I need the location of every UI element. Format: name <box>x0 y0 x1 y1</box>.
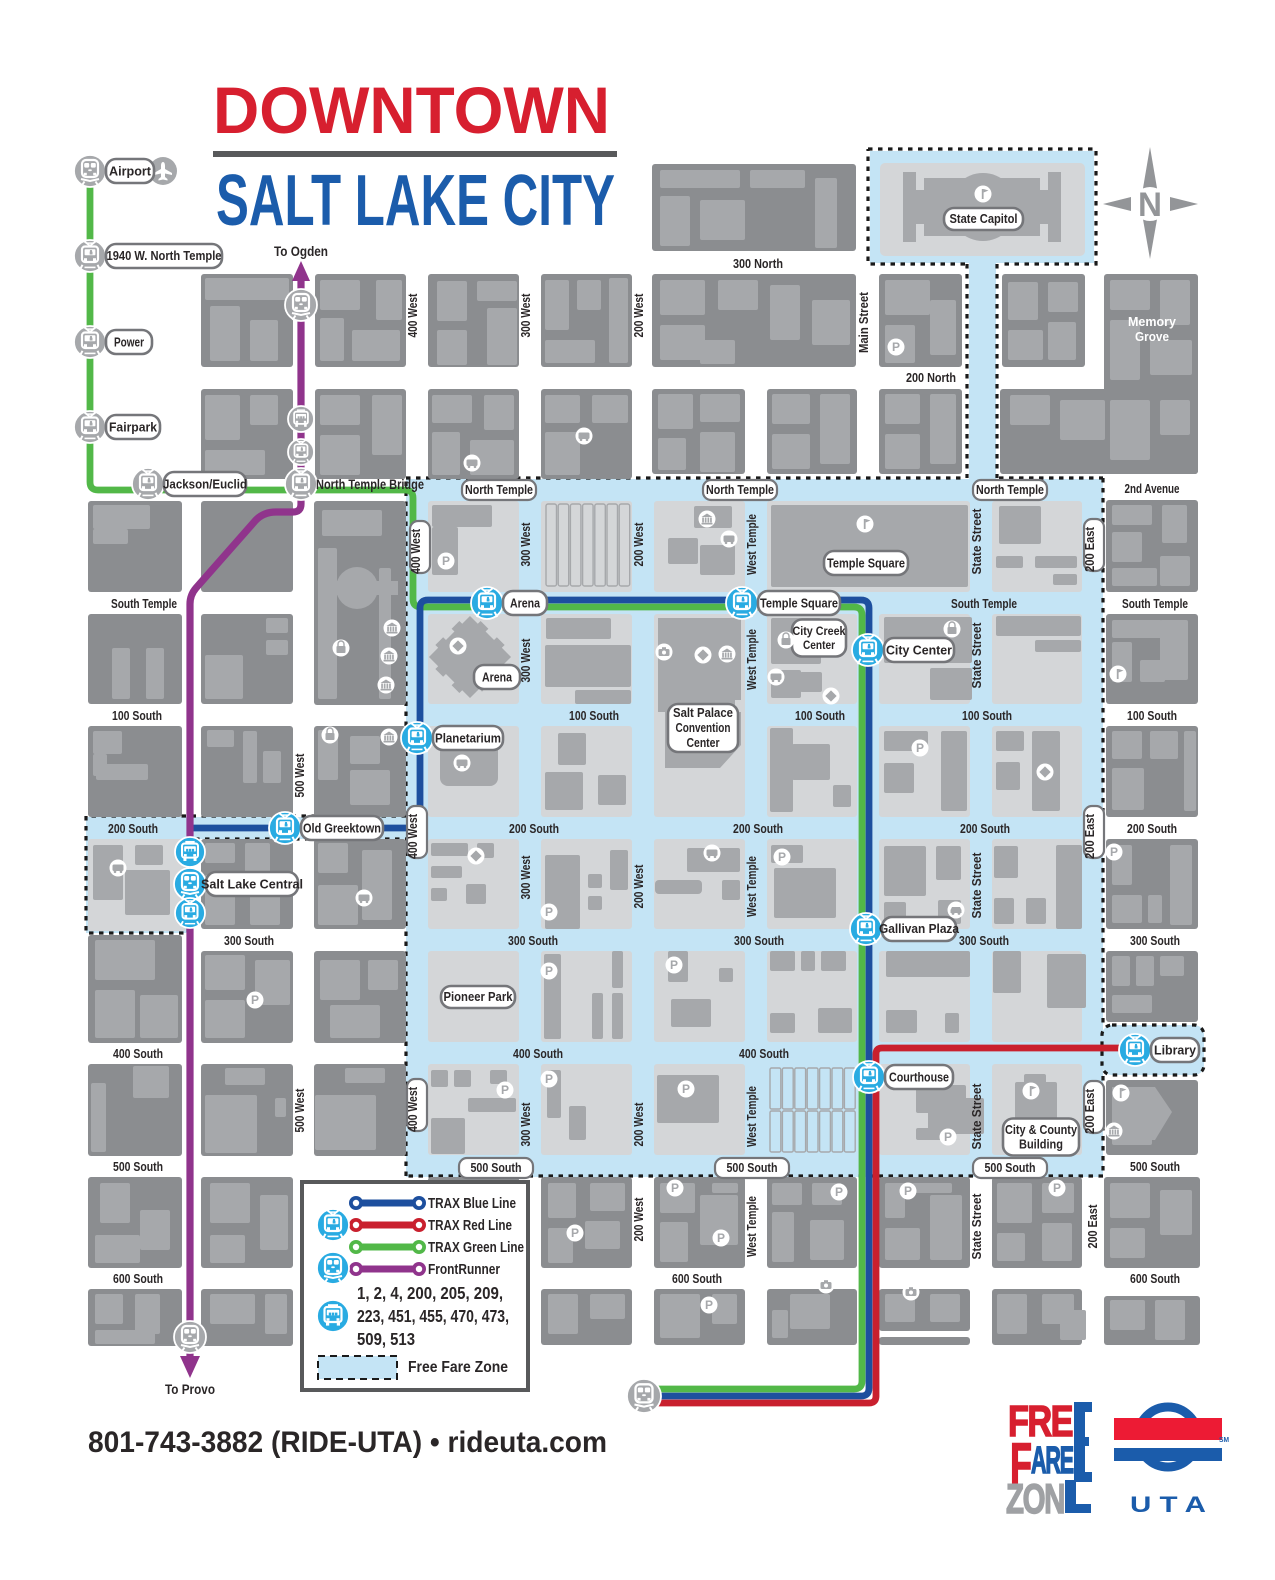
svg-text:City & County: City & County <box>1005 1123 1077 1137</box>
svg-text:North Temple: North Temple <box>706 483 774 497</box>
svg-text:200 East: 200 East <box>1083 1088 1097 1134</box>
svg-text:300 South: 300 South <box>959 933 1009 948</box>
svg-text:West Temple: West Temple <box>744 1196 759 1257</box>
svg-text:300 West: 300 West <box>518 855 533 900</box>
svg-text:200 West: 200 West <box>631 864 646 909</box>
svg-text:400 West: 400 West <box>405 293 420 338</box>
svg-text:Airport: Airport <box>109 163 152 178</box>
svg-text:509, 513: 509, 513 <box>357 1329 415 1349</box>
svg-text:SALT LAKE CITY: SALT LAKE CITY <box>216 161 615 241</box>
svg-text:West Temple: West Temple <box>744 514 759 575</box>
svg-text:DOWNTOWN: DOWNTOWN <box>213 73 610 147</box>
svg-text:Main Street: Main Street <box>856 291 871 353</box>
svg-text:400 South: 400 South <box>513 1046 563 1061</box>
svg-text:Center: Center <box>803 638 835 652</box>
svg-text:North Temple: North Temple <box>976 483 1044 497</box>
svg-text:200 West: 200 West <box>631 1197 646 1242</box>
svg-text:500 South: 500 South <box>1130 1159 1180 1174</box>
svg-text:200 West: 200 West <box>631 293 646 338</box>
svg-text:State Capitol: State Capitol <box>950 212 1018 226</box>
svg-text:SM: SM <box>1219 1437 1229 1444</box>
svg-text:200 South: 200 South <box>960 821 1010 836</box>
svg-text:N: N <box>1138 186 1162 224</box>
svg-text:ZON: ZON <box>1006 1475 1064 1522</box>
svg-text:300 South: 300 South <box>1130 933 1180 948</box>
svg-text:223, 451, 455, 470, 473,: 223, 451, 455, 470, 473, <box>357 1306 509 1326</box>
svg-text:Arena: Arena <box>482 669 513 684</box>
svg-text:Planetarium: Planetarium <box>435 730 501 745</box>
svg-text:TRAX Blue Line: TRAX Blue Line <box>428 1196 516 1212</box>
svg-text:Library: Library <box>1154 1042 1197 1057</box>
svg-text:West Temple: West Temple <box>744 1086 759 1147</box>
svg-text:North Temple: North Temple <box>465 483 533 497</box>
svg-text:Salt Palace: Salt Palace <box>673 706 733 720</box>
svg-text:TRAX Red Line: TRAX Red Line <box>428 1218 512 1234</box>
svg-text:100 South: 100 South <box>962 708 1012 723</box>
svg-text:To Provo: To Provo <box>165 1382 215 1397</box>
svg-text:Jackson/Euclid: Jackson/Euclid <box>163 476 247 491</box>
svg-text:200 West: 200 West <box>631 522 646 567</box>
svg-text:Temple Square: Temple Square <box>760 595 838 610</box>
svg-text:TRAX Green Line: TRAX Green Line <box>428 1240 524 1256</box>
svg-text:West Temple: West Temple <box>744 629 759 690</box>
svg-text:Center: Center <box>687 736 720 750</box>
svg-text:300 South: 300 South <box>734 933 784 948</box>
svg-text:South Temple: South Temple <box>951 596 1017 611</box>
svg-text:West Temple: West Temple <box>744 856 759 917</box>
svg-text:300 West: 300 West <box>518 1102 533 1147</box>
svg-text:200 South: 200 South <box>509 821 559 836</box>
svg-text:600 South: 600 South <box>1130 1271 1180 1286</box>
svg-text:Convention: Convention <box>676 721 731 735</box>
svg-text:North Temple Bridge: North Temple Bridge <box>316 477 424 492</box>
svg-text:400 South: 400 South <box>739 1046 789 1061</box>
svg-text:1940 W. North Temple: 1940 W. North Temple <box>107 249 222 263</box>
svg-text:Building: Building <box>1019 1138 1063 1152</box>
svg-text:State Street: State Street <box>969 1083 984 1150</box>
svg-text:Power: Power <box>114 334 144 349</box>
svg-text:200 West: 200 West <box>631 1102 646 1147</box>
svg-text:Arena: Arena <box>510 595 541 610</box>
svg-text:South Temple: South Temple <box>1122 596 1188 611</box>
svg-text:100 South: 100 South <box>112 708 162 723</box>
svg-text:State Street: State Street <box>969 852 984 919</box>
svg-text:500 South: 500 South <box>727 1161 778 1175</box>
svg-text:500 South: 500 South <box>471 1161 522 1175</box>
svg-text:200 East: 200 East <box>1083 526 1097 572</box>
svg-text:U T A: U T A <box>1130 1492 1206 1517</box>
svg-text:300 North: 300 North <box>733 256 783 271</box>
svg-text:Fairpark: Fairpark <box>109 419 158 434</box>
svg-text:200 South: 200 South <box>733 821 783 836</box>
svg-text:200 South: 200 South <box>1127 821 1177 836</box>
svg-text:Memory: Memory <box>1128 315 1176 329</box>
svg-text:500 South: 500 South <box>985 1161 1036 1175</box>
svg-text:600 South: 600 South <box>113 1271 163 1286</box>
svg-text:200 East: 200 East <box>1083 813 1097 859</box>
svg-text:Free Fare Zone: Free Fare Zone <box>408 1359 508 1376</box>
svg-text:400 South: 400 South <box>113 1046 163 1061</box>
svg-text:City Creek: City Creek <box>793 624 846 638</box>
svg-text:200 North: 200 North <box>906 370 956 385</box>
svg-text:400 West: 400 West <box>406 1086 420 1132</box>
svg-text:State Street: State Street <box>969 508 984 575</box>
svg-text:Courthouse: Courthouse <box>889 1069 949 1084</box>
svg-text:801-743-3882 (RIDE-UTA) • ri: 801-743-3882 (RIDE-UTA) • rideuta.com <box>88 1426 607 1459</box>
svg-text:To Ogden: To Ogden <box>274 244 328 259</box>
svg-text:South Temple: South Temple <box>111 596 177 611</box>
svg-text:500 West: 500 West <box>292 1088 307 1133</box>
svg-text:600 South: 600 South <box>672 1271 722 1286</box>
svg-text:Temple Square: Temple Square <box>827 555 905 570</box>
svg-text:200 East: 200 East <box>1085 1204 1100 1249</box>
svg-text:Grove: Grove <box>1135 330 1169 344</box>
svg-text:500 West: 500 West <box>292 753 307 798</box>
svg-text:1, 2, 4, 200, 205, 209,: 1, 2, 4, 200, 205, 209, <box>357 1283 503 1303</box>
svg-text:State Street: State Street <box>969 622 984 689</box>
svg-text:300 South: 300 South <box>224 933 274 948</box>
svg-text:300 West: 300 West <box>518 522 533 567</box>
svg-text:State Street: State Street <box>969 1193 984 1260</box>
svg-text:100 South: 100 South <box>569 708 619 723</box>
svg-text:100 South: 100 South <box>1127 708 1177 723</box>
svg-text:400 West: 400 West <box>406 813 420 859</box>
svg-text:Gallivan Plaza: Gallivan Plaza <box>879 922 960 936</box>
svg-text:Pioneer Park: Pioneer Park <box>444 990 513 1004</box>
svg-text:FrontRunner: FrontRunner <box>428 1262 500 1278</box>
svg-text:Old Greektown: Old Greektown <box>303 820 381 835</box>
svg-text:300 South: 300 South <box>508 933 558 948</box>
svg-text:2nd Avenue: 2nd Avenue <box>1125 481 1180 496</box>
svg-text:Salt Lake Central: Salt Lake Central <box>201 876 303 891</box>
svg-text:300 West: 300 West <box>518 293 533 338</box>
svg-text:500 South: 500 South <box>113 1159 163 1174</box>
svg-text:400 West: 400 West <box>409 528 423 574</box>
svg-text:100 South: 100 South <box>795 708 845 723</box>
svg-text:200 South: 200 South <box>108 821 158 836</box>
svg-text:City Center: City Center <box>886 642 952 657</box>
